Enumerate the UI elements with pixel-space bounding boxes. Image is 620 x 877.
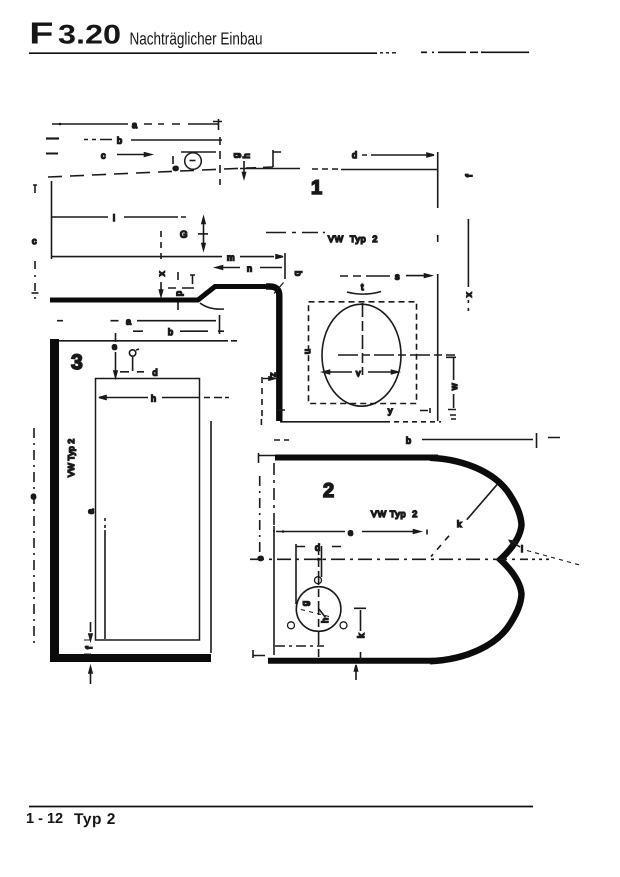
svg-text:f: f <box>84 646 94 649</box>
svg-text:c: c <box>32 236 37 246</box>
svg-text:Typ 2: Typ 2 <box>74 811 116 828</box>
svg-text:i: i <box>521 544 523 554</box>
svg-text:c: c <box>101 151 106 161</box>
svg-text:x: x <box>464 292 474 297</box>
svg-text:g: g <box>300 601 310 606</box>
svg-text:VW Typ 2: VW Typ 2 <box>371 509 418 519</box>
svg-text:VW Typ 2: VW Typ 2 <box>328 234 378 244</box>
svg-text:m: m <box>227 253 235 263</box>
svg-text:3.20: 3.20 <box>58 20 121 50</box>
svg-text:v: v <box>356 368 361 378</box>
svg-text:p: p <box>174 291 184 296</box>
svg-text:g: g <box>231 153 241 158</box>
svg-text:VW Typ 2: VW Typ 2 <box>66 439 76 477</box>
svg-text:b: b <box>406 435 411 445</box>
svg-text:a: a <box>86 509 96 514</box>
svg-text:3: 3 <box>71 351 83 374</box>
svg-text:e: e <box>255 556 265 561</box>
svg-text:d: d <box>153 368 158 378</box>
svg-text:d: d <box>352 150 357 160</box>
svg-text:h: h <box>320 618 330 623</box>
svg-text:e: e <box>112 342 117 352</box>
svg-text:b: b <box>117 136 122 146</box>
svg-text:n: n <box>247 264 252 274</box>
svg-text:e: e <box>348 527 353 537</box>
svg-text:i: i <box>113 213 115 223</box>
svg-text:w: w <box>449 383 459 391</box>
svg-text:a: a <box>132 120 137 130</box>
svg-text:h: h <box>242 153 252 158</box>
svg-text:e: e <box>170 166 180 171</box>
svg-text:s: s <box>395 272 400 282</box>
svg-text:e: e <box>31 491 36 501</box>
svg-text:y: y <box>388 406 393 416</box>
svg-text:f: f <box>464 174 474 177</box>
svg-text:F: F <box>29 17 53 51</box>
svg-text:2: 2 <box>323 480 334 502</box>
svg-text:h: h <box>151 393 156 403</box>
svg-text:k: k <box>457 519 462 529</box>
svg-text:x: x <box>157 271 167 276</box>
svg-text:q: q <box>292 271 302 276</box>
svg-text:z: z <box>268 372 278 377</box>
svg-text:t: t <box>361 282 364 292</box>
svg-text:k: k <box>356 633 366 638</box>
svg-text:G: G <box>180 230 187 241</box>
svg-text:1: 1 <box>311 177 322 199</box>
svg-text:1 - 12: 1 - 12 <box>26 811 63 827</box>
svg-text:b: b <box>168 327 173 337</box>
svg-text:u: u <box>302 349 312 354</box>
svg-text:Nachträglicher Einbau: Nachträglicher Einbau <box>130 29 263 49</box>
svg-text:a: a <box>126 317 131 327</box>
